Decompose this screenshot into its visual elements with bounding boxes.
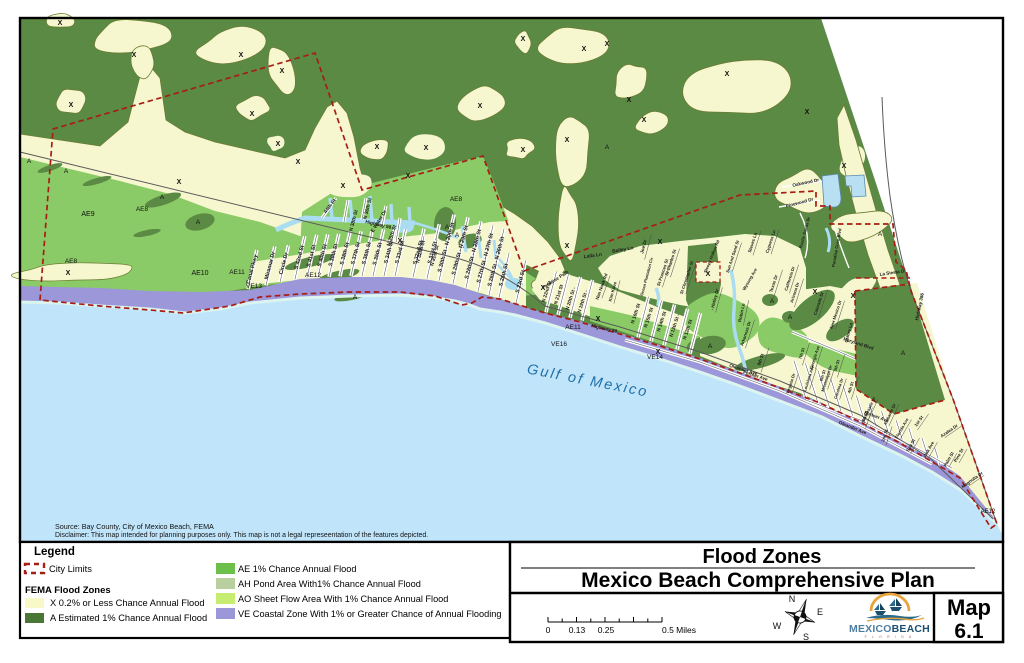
svg-text:AE8: AE8 [136, 206, 149, 213]
svg-text:AE12: AE12 [981, 509, 996, 515]
svg-text:AE8: AE8 [65, 258, 78, 265]
svg-text:X: X [478, 103, 483, 110]
svg-text:X: X [66, 270, 71, 277]
svg-text:AE10: AE10 [191, 270, 208, 277]
svg-text:A: A [455, 232, 460, 239]
svg-text:X: X [656, 349, 661, 356]
svg-text:X: X [296, 159, 301, 166]
svg-text:X: X [58, 20, 63, 27]
svg-text:X 0.2% or Less Chance Annual: X 0.2% or Less Chance Annual Flood [50, 598, 205, 608]
svg-text:AE12: AE12 [305, 272, 321, 279]
svg-text:X: X [406, 173, 411, 180]
svg-text:X: X [582, 46, 587, 53]
svg-text:A Estimated 1% Chance Annual: A Estimated 1% Chance Annual Flood [50, 613, 207, 623]
svg-text:X: X [596, 316, 601, 323]
svg-text:X: X [605, 41, 610, 48]
svg-text:W: W [773, 621, 782, 631]
svg-text:X: X [627, 97, 632, 104]
svg-text:X: X [805, 109, 810, 116]
svg-text:X: X [424, 145, 429, 152]
svg-text:X: X [658, 239, 663, 246]
svg-text:AE11: AE11 [565, 324, 581, 331]
svg-text:Map: Map [947, 595, 991, 620]
svg-text:X: X [69, 102, 74, 109]
svg-text:AH Pond Area With1% Chance Ann: AH Pond Area With1% Chance Annual Flood [238, 579, 421, 589]
svg-text:N: N [789, 594, 796, 604]
svg-text:X: X [851, 293, 856, 300]
svg-text:E: E [817, 607, 823, 617]
svg-text:A: A [64, 168, 69, 175]
svg-text:AE9: AE9 [81, 211, 94, 218]
svg-text:Disclaimer: This map intended: Disclaimer: This map intended for planni… [55, 532, 428, 539]
svg-text:AE8: AE8 [450, 196, 463, 203]
svg-text:0.5 Miles: 0.5 Miles [662, 625, 696, 635]
svg-text:S: S [803, 632, 809, 642]
svg-text:VE16: VE16 [551, 341, 567, 348]
svg-text:0: 0 [546, 625, 551, 635]
svg-text:X: X [842, 163, 847, 170]
svg-text:X: X [132, 52, 137, 59]
svg-text:MEXICOBEACH: MEXICOBEACH [849, 623, 930, 635]
svg-text:A: A [901, 350, 906, 357]
svg-text:Source: Bay County, City of Me: Source: Bay County, City of Mexico Beach… [55, 522, 214, 531]
svg-text:City Limits: City Limits [49, 564, 92, 574]
svg-text:X: X [177, 179, 182, 186]
svg-text:X: X [813, 289, 818, 296]
svg-text:X: X [239, 52, 244, 59]
svg-text:X: X [725, 71, 730, 78]
svg-text:F L O R I D A: F L O R I D A [865, 635, 914, 639]
svg-text:A: A [878, 231, 883, 238]
svg-text:X: X [375, 144, 380, 151]
svg-text:A: A [196, 219, 201, 226]
svg-text:X: X [341, 183, 346, 190]
svg-text:FEMA Flood Zones: FEMA Flood Zones [25, 585, 111, 596]
svg-text:X: X [276, 141, 281, 148]
svg-text:X: X [565, 243, 570, 250]
svg-text:A: A [770, 298, 775, 305]
svg-text:Legend: Legend [34, 546, 75, 558]
svg-text:X: X [521, 147, 526, 154]
svg-text:0.25: 0.25 [598, 625, 615, 635]
svg-text:X: X [280, 68, 285, 75]
svg-text:VE Coastal Zone With 1% or Gr: VE Coastal Zone With 1% or Greater Chanc… [238, 609, 502, 619]
svg-text:A: A [160, 194, 165, 201]
svg-text:A: A [27, 158, 32, 165]
svg-text:0.13: 0.13 [569, 625, 586, 635]
svg-text:X: X [521, 36, 526, 43]
svg-text:AE11: AE11 [229, 269, 245, 276]
svg-text:A: A [708, 343, 713, 350]
svg-text:X: X [642, 117, 647, 124]
svg-text:X: X [250, 111, 255, 118]
svg-text:A: A [605, 144, 610, 151]
svg-text:A: A [788, 314, 793, 321]
svg-text:AE 1% Chance Annual Flood: AE 1% Chance Annual Flood [238, 564, 357, 574]
svg-text:Mexico Beach Comprehensive Pla: Mexico Beach Comprehensive Plan [581, 569, 935, 592]
svg-text:6.1: 6.1 [954, 620, 984, 643]
svg-text:AO Sheet Flow Area With 1% Cha: AO Sheet Flow Area With 1% Chance Annual… [238, 594, 448, 604]
svg-text:X: X [565, 137, 570, 144]
svg-text:Flood Zones: Flood Zones [703, 546, 822, 568]
svg-text:A: A [353, 294, 358, 301]
